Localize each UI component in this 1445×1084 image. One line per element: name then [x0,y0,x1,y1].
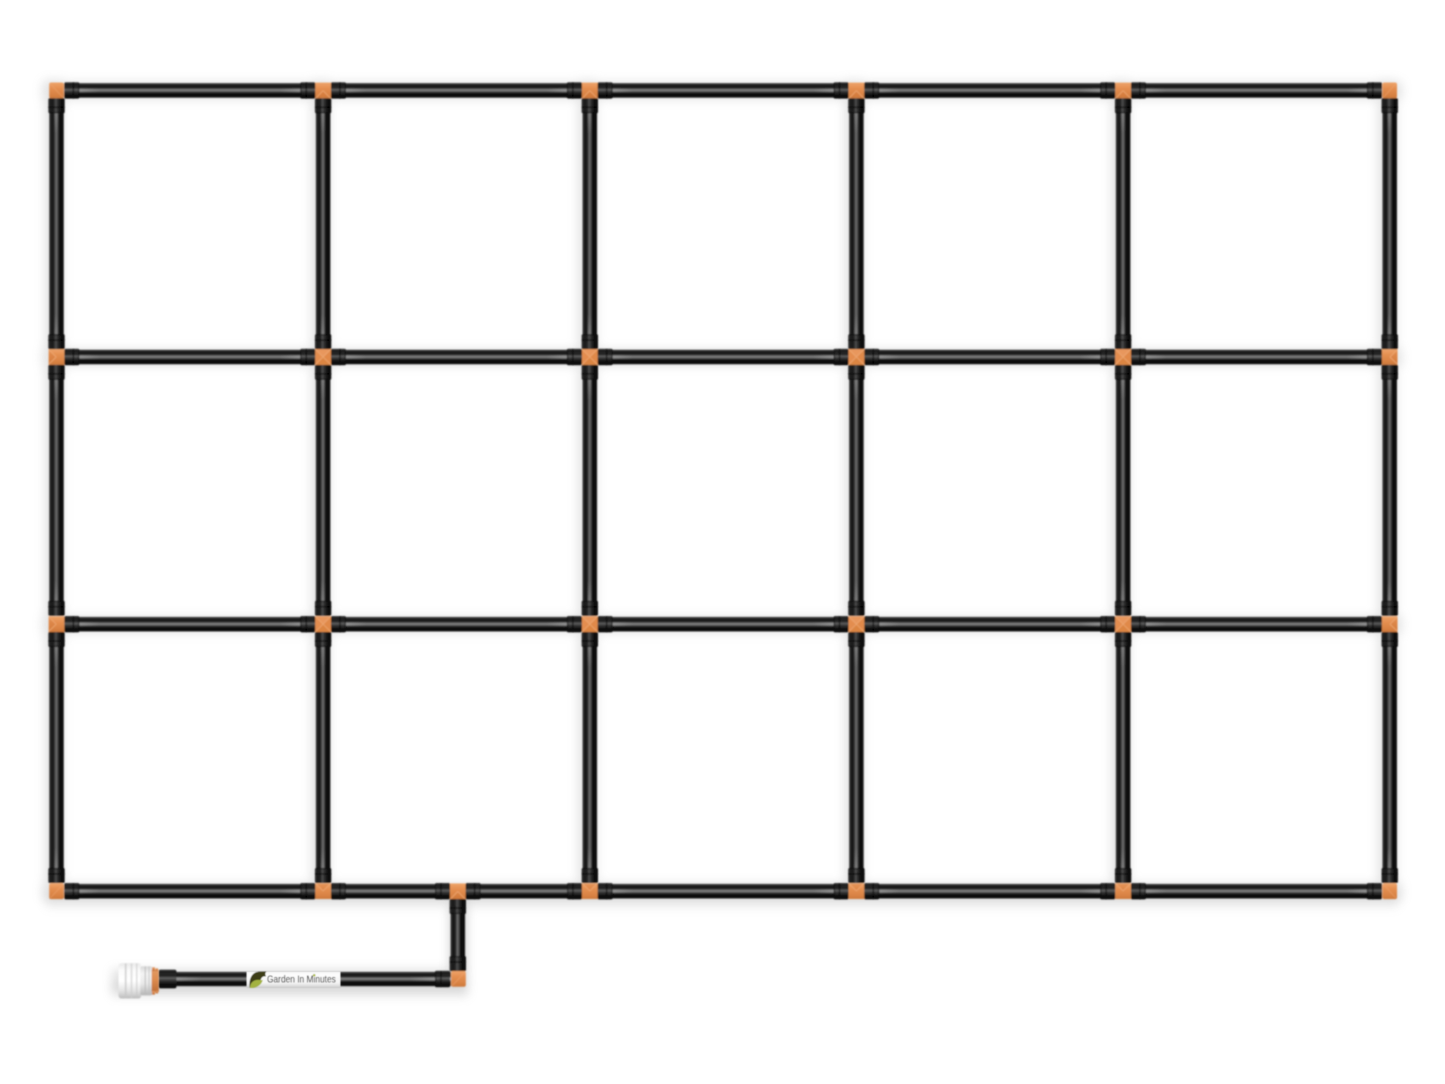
svg-text:Garden In Minutes: Garden In Minutes [267,974,336,986]
